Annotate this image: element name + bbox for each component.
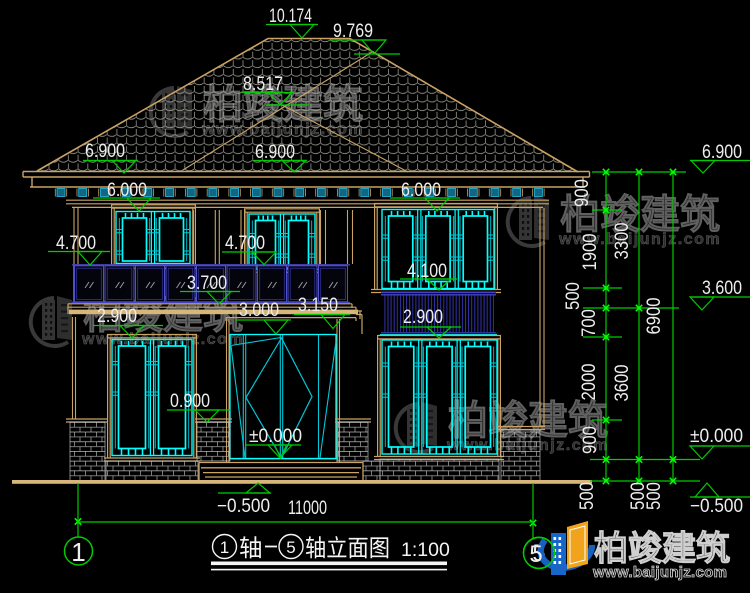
svg-text:500: 500 — [644, 482, 665, 510]
svg-text:900: 900 — [572, 179, 593, 207]
svg-text:500: 500 — [563, 282, 584, 310]
svg-text:6.900: 6.900 — [85, 141, 125, 162]
svg-text:−0.500: −0.500 — [217, 496, 270, 517]
svg-text:轴立面图: 轴立面图 — [305, 535, 390, 561]
svg-text:2.900: 2.900 — [403, 307, 443, 328]
svg-text:1:100: 1:100 — [401, 539, 450, 561]
svg-text:3.000: 3.000 — [239, 300, 279, 321]
svg-text:1: 1 — [220, 538, 229, 557]
svg-text:轴: 轴 — [239, 535, 263, 561]
svg-text:6900: 6900 — [644, 298, 665, 335]
svg-text:0.900: 0.900 — [170, 391, 210, 412]
svg-text:500: 500 — [577, 482, 598, 510]
svg-text:3.600: 3.600 — [702, 278, 742, 299]
svg-text:900: 900 — [580, 426, 601, 454]
svg-text:±0.000: ±0.000 — [690, 426, 743, 447]
svg-text:700: 700 — [579, 309, 600, 337]
svg-text:5: 5 — [529, 541, 542, 568]
svg-text:4.700: 4.700 — [225, 233, 265, 254]
svg-text:1900: 1900 — [580, 234, 601, 271]
svg-text:www.baijunjz.com: www.baijunjz.com — [592, 564, 727, 581]
svg-text:9.769: 9.769 — [333, 21, 373, 42]
svg-text:3300: 3300 — [612, 223, 633, 260]
svg-text:±0.000: ±0.000 — [249, 426, 302, 447]
svg-text:柏竣建筑: 柏竣建筑 — [594, 529, 730, 568]
svg-text:3600: 3600 — [612, 365, 633, 402]
svg-text:5: 5 — [286, 538, 295, 557]
svg-text:2000: 2000 — [579, 364, 600, 401]
svg-text:11000: 11000 — [288, 498, 327, 519]
svg-text:2.900: 2.900 — [97, 306, 137, 327]
svg-text:3.150: 3.150 — [298, 295, 338, 316]
svg-text:1: 1 — [71, 537, 85, 567]
svg-text:−0.500: −0.500 — [690, 496, 743, 517]
